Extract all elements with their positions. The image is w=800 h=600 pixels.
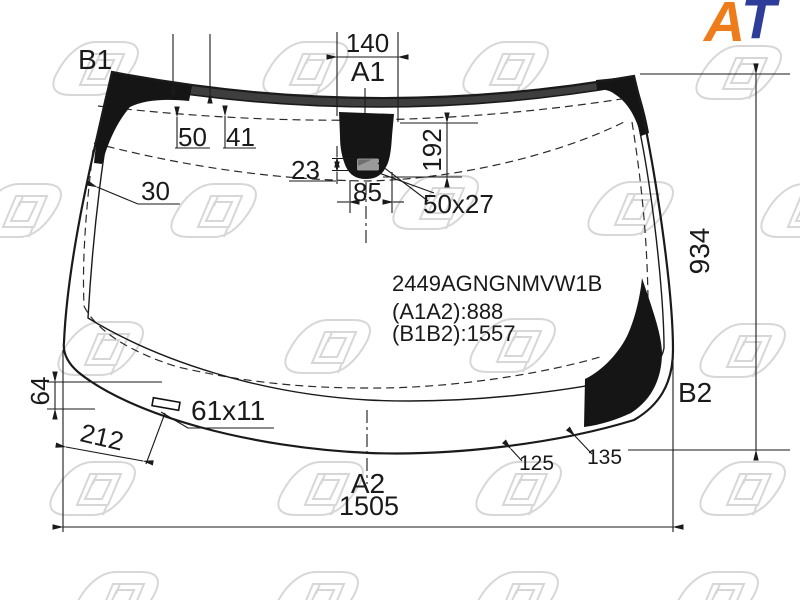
- dim-41: 41: [226, 124, 255, 150]
- a1a2-distance: (A1A2):888: [392, 301, 503, 323]
- bottom-right-band: [584, 278, 662, 427]
- corner-label-b1: B1: [78, 46, 112, 74]
- dim-1505: 1505: [337, 493, 401, 520]
- dim-125: 125: [519, 453, 554, 474]
- part-number: 2449AGNGNMVW1B: [392, 273, 602, 295]
- corner-label-a1: A1: [350, 58, 386, 86]
- heater-slot: [152, 398, 180, 411]
- dim-50x27: 50x27: [423, 191, 494, 217]
- logo-letter-t: T: [741, 0, 776, 48]
- b1b2-distance: (B1B2):1557: [392, 323, 516, 345]
- corner-label-b2: B2: [678, 379, 712, 407]
- dim-30: 30: [141, 178, 170, 204]
- dim-140: 140: [337, 30, 398, 56]
- dim-64: 64: [27, 361, 53, 421]
- dim-192: 192: [419, 115, 445, 185]
- dim-934: 934: [686, 211, 714, 291]
- dim-85: 85: [353, 179, 382, 205]
- dim-61x11: 61x11: [191, 397, 265, 425]
- windshield-diagram: B1 140 A1 50 41 30 23 85 50x27 192 934 2…: [0, 0, 800, 600]
- dim-135: 135: [587, 447, 622, 468]
- logo-letter-a: A: [704, 0, 745, 51]
- dim-50: 50: [178, 124, 207, 150]
- dim-23: 23: [291, 157, 320, 183]
